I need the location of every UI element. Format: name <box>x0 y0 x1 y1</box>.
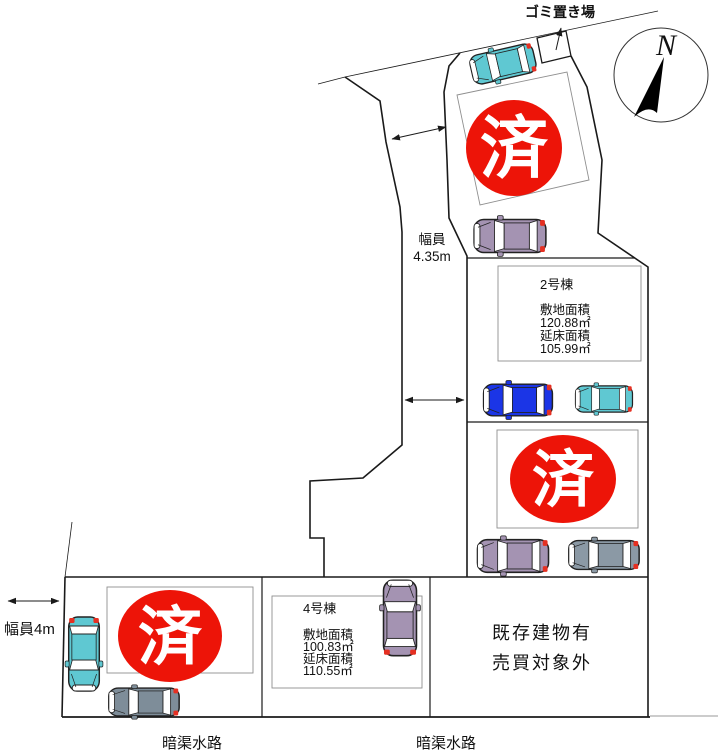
sold-mark-1: 済 <box>466 100 562 196</box>
car-purple-3 <box>380 580 421 655</box>
lot2-site-area-value: 120.88㎡ <box>540 316 591 330</box>
road-right-edge <box>444 53 467 577</box>
sold-mark-3: 済 <box>118 590 222 682</box>
car-purple-1 <box>474 216 546 257</box>
car-blue <box>484 380 553 419</box>
car-gray-2 <box>109 685 179 719</box>
existing-building-line1: 既存建物有 <box>492 623 592 643</box>
compass-needle <box>634 57 664 117</box>
site-plan-page: 済 済 済 N ゴミ置き場 幅員 4.35m 幅員4m 2号棟 敷地面積 120… <box>0 0 718 753</box>
road-left-edge <box>310 77 402 577</box>
sold-mark-2: 済 <box>510 435 616 523</box>
car-gray-1 <box>569 537 639 573</box>
waterway-label-left: 暗渠水路 <box>162 735 222 752</box>
lot2-name: 2号棟 <box>540 277 573 292</box>
width-arrow-top <box>392 127 446 139</box>
road-width-label-line1: 幅員 <box>419 232 446 247</box>
car-purple-2 <box>477 536 548 576</box>
existing-building-line2: 売買対象外 <box>492 653 592 673</box>
compass-n-label: N <box>655 29 678 62</box>
bottom-block-left-edge <box>62 577 65 717</box>
sold-text-3: 済 <box>138 601 203 673</box>
lot4-name: 4号棟 <box>303 601 336 616</box>
road-width-label-line2: 4.35m <box>413 249 451 264</box>
car-teal-3 <box>65 617 103 691</box>
car-teal-2 <box>576 383 633 415</box>
existing-building-info: 既存建物有 売買対象外 <box>492 623 592 673</box>
lot2-floor-area-label: 延床面積 <box>540 328 591 343</box>
waterway-label-right: 暗渠水路 <box>416 735 476 752</box>
sold-text-2: 済 <box>532 446 595 515</box>
west-thin-boundary <box>65 522 72 577</box>
lot4-floor-area-value: 110.55㎡ <box>303 664 353 678</box>
garbage-area-label: ゴミ置き場 <box>525 4 595 20</box>
lot2-floor-area-value: 105.99㎡ <box>540 342 591 356</box>
lot2-site-area-label: 敷地面積 <box>540 302 591 317</box>
left-road-width-label: 幅員4m <box>4 621 55 638</box>
site-plan-svg: 済 済 済 N ゴミ置き場 幅員 4.35m 幅員4m 2号棟 敷地面積 120… <box>0 0 718 753</box>
north-compass: N <box>614 28 708 122</box>
sold-text-1: 済 <box>480 111 549 187</box>
